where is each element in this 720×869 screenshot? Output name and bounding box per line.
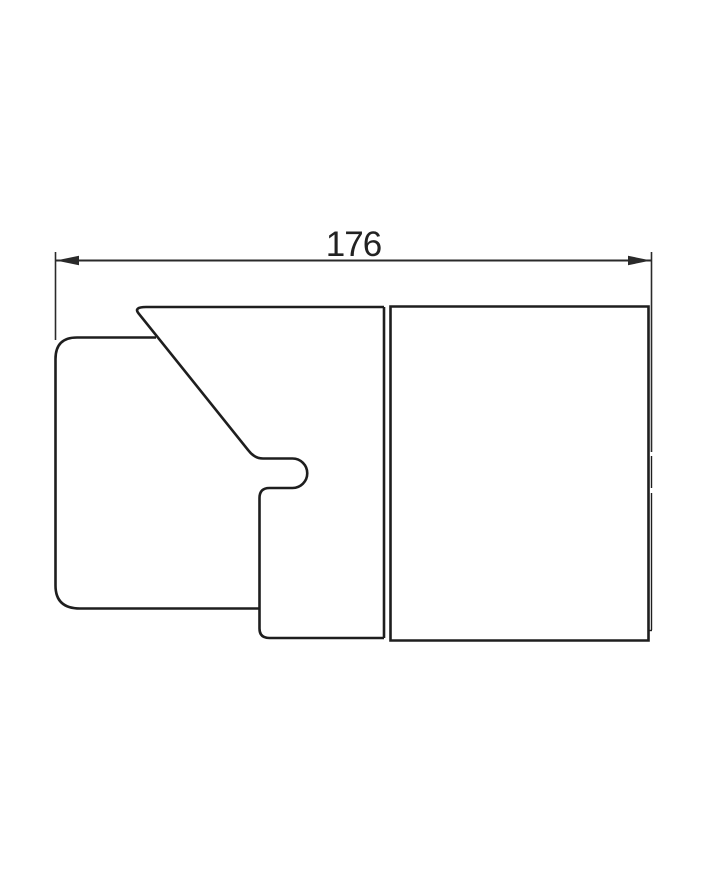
part-outline xyxy=(56,307,653,641)
drawing-canvas: 176 xyxy=(0,0,720,869)
left-cuff-outline xyxy=(56,338,261,609)
dimension-label: 176 xyxy=(326,225,381,264)
middle-body-outline xyxy=(137,307,384,638)
dimension-arrow-right-icon xyxy=(628,256,651,265)
dimension-arrow-left-icon xyxy=(56,256,79,265)
right-sleeve-outline xyxy=(391,307,649,641)
technical-drawing: 176 xyxy=(0,0,720,869)
